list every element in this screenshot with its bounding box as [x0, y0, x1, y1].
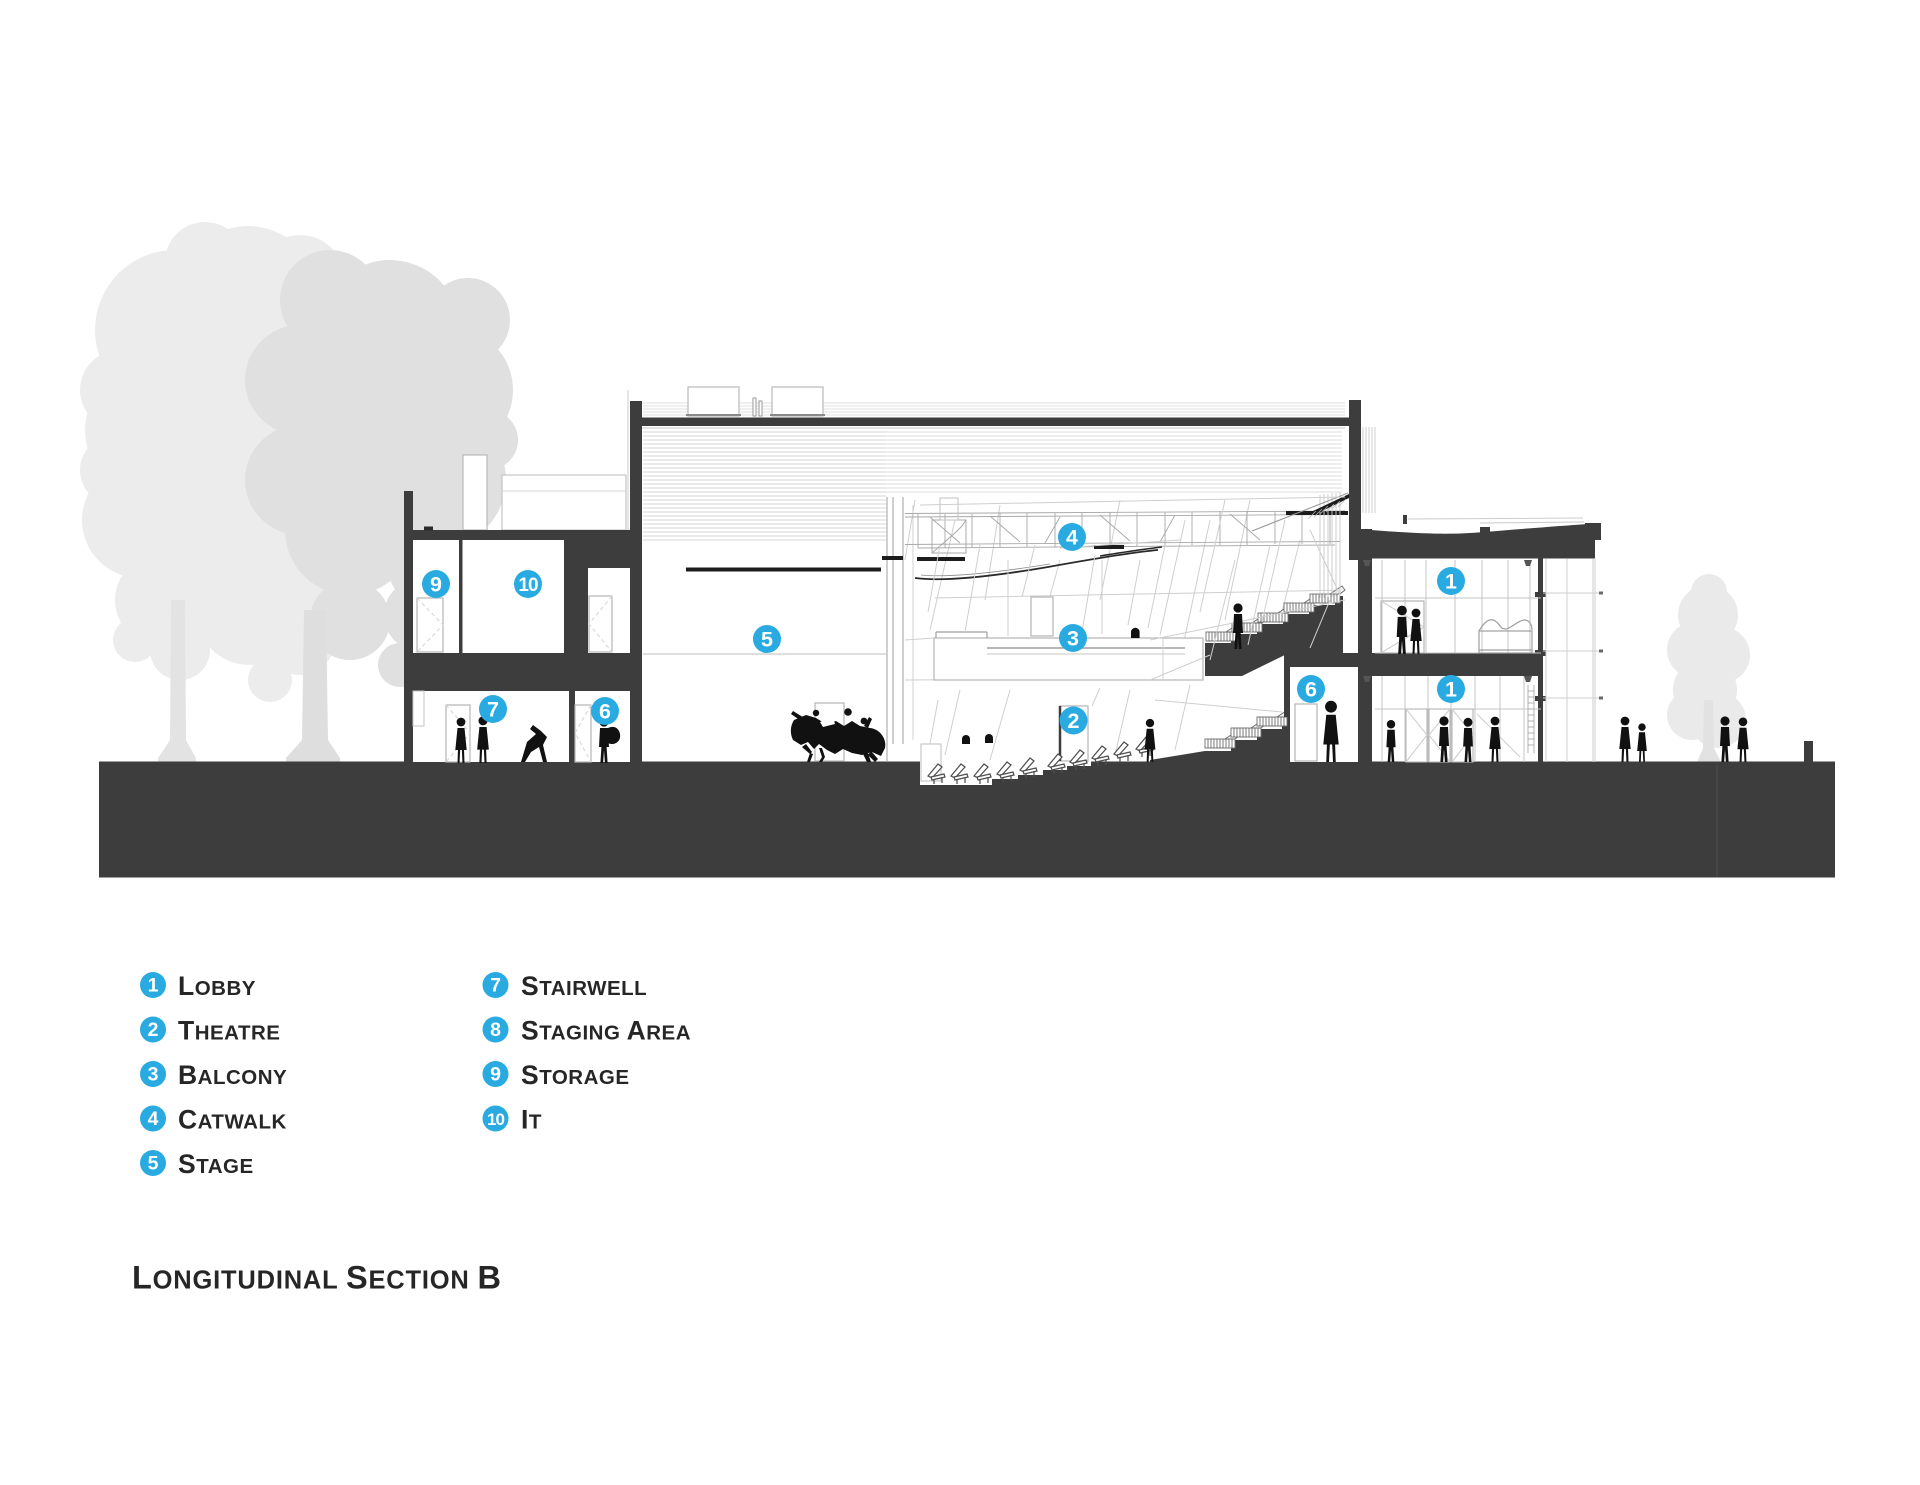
svg-text:1: 1	[1445, 678, 1457, 702]
svg-text:7: 7	[487, 698, 499, 722]
svg-text:7: 7	[490, 975, 501, 997]
svg-text:10: 10	[518, 575, 538, 596]
svg-text:9: 9	[430, 573, 442, 597]
svg-text:4: 4	[1066, 526, 1078, 550]
svg-text:2: 2	[148, 1019, 159, 1041]
svg-text:6: 6	[1305, 678, 1317, 702]
svg-text:8: 8	[490, 1019, 501, 1041]
svg-text:2: 2	[1068, 709, 1080, 733]
svg-text:10: 10	[487, 1110, 504, 1129]
svg-text:3: 3	[1067, 627, 1079, 651]
svg-text:5: 5	[148, 1153, 159, 1175]
svg-text:1: 1	[1445, 570, 1457, 594]
svg-text:5: 5	[761, 628, 773, 652]
svg-text:6: 6	[599, 700, 611, 724]
svg-text:4: 4	[148, 1108, 159, 1130]
svg-text:3: 3	[148, 1064, 159, 1086]
svg-text:1: 1	[148, 975, 159, 997]
svg-text:9: 9	[490, 1064, 501, 1086]
